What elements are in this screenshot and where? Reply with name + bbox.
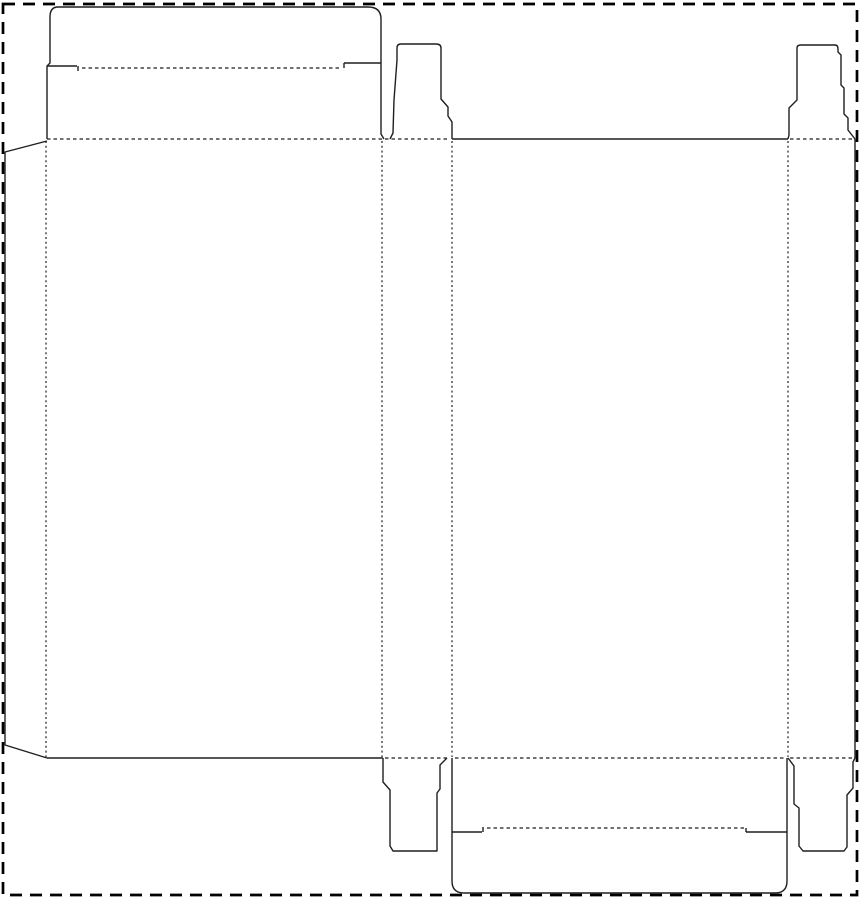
cut-glue-flap <box>5 141 47 758</box>
cut-lid-lock-slits <box>47 63 381 71</box>
sheet-border <box>3 4 857 895</box>
dieline-canvas <box>0 0 861 900</box>
cut-dust-flap-top-right <box>788 45 855 139</box>
cut-dust-flap-bottom-left <box>383 758 447 851</box>
cut-lid-outline <box>47 7 384 139</box>
cut-bottom-flap-outline <box>452 758 787 893</box>
cut-dust-flap-top-left <box>390 44 452 139</box>
box-dieline-svg <box>0 0 861 900</box>
cut-dust-flap-bottom-right <box>788 758 855 851</box>
